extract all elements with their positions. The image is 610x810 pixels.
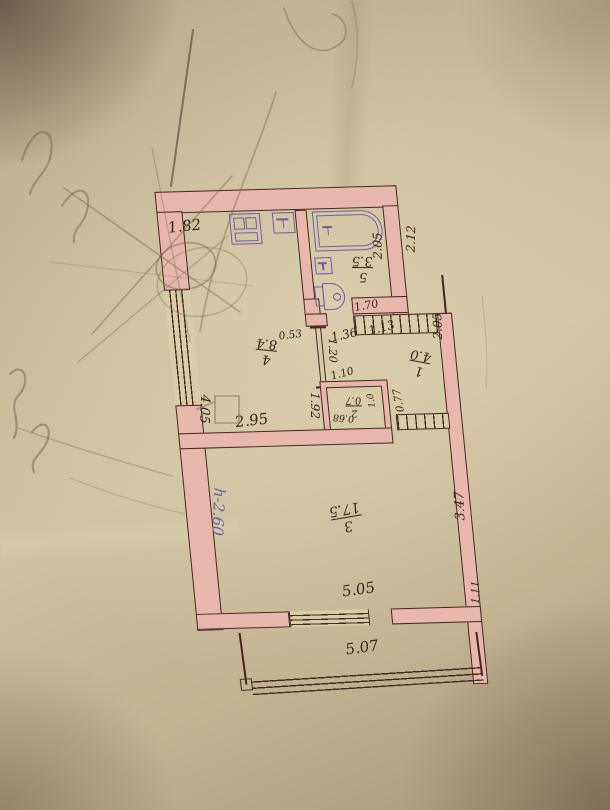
kitchen-sink (272, 212, 296, 234)
partition-kitchen-hall (315, 326, 327, 388)
dim-bath-right-outside: 2.12 (405, 225, 418, 253)
wall-kitchen-bottom-living-top (178, 427, 393, 449)
dim-closet-door: 0.77 (392, 388, 407, 412)
dim-kitchen-top: 1.82 (167, 218, 203, 236)
dim-bath-depth: 2.05 (371, 232, 383, 259)
stove (229, 213, 263, 245)
dim-kitchen-door-stub: 0.53 (278, 329, 303, 342)
paper-crease (325, 0, 375, 201)
room-area: 0.7 (345, 394, 362, 406)
room-number: 2 (346, 406, 363, 419)
dim-balcony-side: 1.11 (471, 580, 482, 604)
room-label-living-room: 3 17.5 (327, 498, 365, 536)
room-area: 4.0 (410, 345, 432, 363)
dim-kitchen-bottom: 2.95 (234, 411, 270, 430)
room-label-bathroom: 5 3.5 (351, 252, 374, 283)
room-label-kitchen: 4 8.4 (256, 334, 278, 367)
dim-kitchen-right: 1.92 (309, 392, 321, 419)
kitchen-window (164, 289, 202, 407)
balcony (225, 617, 493, 705)
dim-partition-opening: 1.20 (327, 338, 339, 363)
wash-basin (314, 257, 333, 274)
room-number: 5 (352, 267, 374, 283)
room-area: 3.5 (351, 252, 373, 267)
note-ceiling-height: h-2.60 (209, 487, 226, 536)
wall-living-bottom-left (196, 611, 291, 630)
dim-living-bottom: 5.05 (341, 580, 377, 599)
toilet (314, 283, 347, 311)
photo-of-floor-plan: 1.82 2.05 2.12 1.70 1.36 1.13 2.05 0.53 … (0, 0, 610, 810)
dim-hall-right: 2.05 (431, 313, 444, 340)
partition-tick-top (310, 326, 326, 328)
wall-stub-053 (305, 313, 328, 327)
room-label-hall: 1 4.0 (408, 345, 432, 379)
dim-kitchen-left: 4.05 (197, 394, 211, 424)
room-label-closet: 2 0.7 (345, 394, 363, 418)
dim-living-right: 3.47 (453, 491, 467, 520)
room-area: 8.4 (256, 334, 277, 351)
dim-balcony-front: 5.07 (344, 638, 380, 657)
balcony-left-return (239, 633, 247, 685)
survey-line-up (441, 275, 446, 315)
wall-hall-bottom-hatched (396, 413, 451, 430)
floor-plan-drawing: 1.82 2.05 2.12 1.70 1.36 1.13 2.05 0.53 … (152, 179, 513, 711)
balcony-railing (251, 666, 484, 695)
